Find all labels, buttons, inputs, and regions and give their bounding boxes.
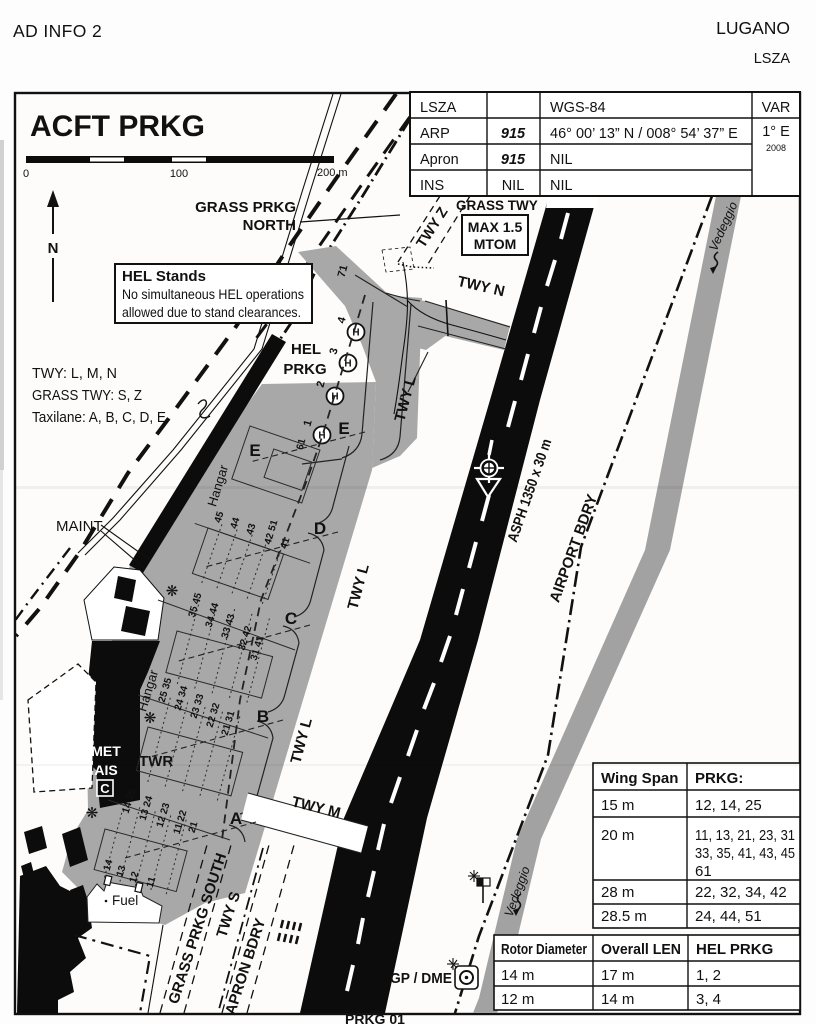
- svg-text:1° E: 1° E: [762, 124, 790, 140]
- svg-text:61: 61: [695, 863, 712, 880]
- svg-text:INS: INS: [420, 178, 444, 194]
- svg-text:Taxilane: A, B, C, D, E: Taxilane: A, B, C, D, E: [32, 409, 166, 426]
- svg-text:Rotor Diameter: Rotor Diameter: [501, 942, 587, 958]
- svg-text:0: 0: [23, 168, 29, 180]
- svg-text:11, 13, 21, 23, 31: 11, 13, 21, 23, 31: [695, 828, 795, 844]
- svg-text:MET: MET: [91, 743, 121, 759]
- svg-text:LSZA: LSZA: [420, 100, 457, 116]
- svg-text:HEL PRKG: HEL PRKG: [696, 941, 773, 958]
- svg-text:20 m: 20 m: [601, 827, 634, 844]
- svg-text:E: E: [249, 441, 260, 460]
- svg-text:12, 14, 25: 12, 14, 25: [695, 797, 762, 814]
- svg-text:14 m: 14 m: [501, 967, 534, 984]
- svg-text:GRASS TWY: S, Z: GRASS TWY: S, Z: [32, 387, 142, 404]
- svg-text:GRASS TWY: GRASS TWY: [456, 198, 538, 213]
- svg-text:2008: 2008: [766, 143, 786, 153]
- svg-text:No simultaneous HEL operations: No simultaneous HEL operations: [122, 286, 304, 302]
- svg-text:46° 00’ 13” N / 008° 54’ 37” E: 46° 00’ 13” N / 008° 54’ 37” E: [550, 126, 738, 142]
- svg-text:17 m: 17 m: [601, 967, 634, 984]
- svg-text:PRKG:: PRKG:: [695, 770, 743, 787]
- svg-text:ACFT PRKG: ACFT PRKG: [30, 110, 205, 143]
- svg-text:VAR: VAR: [762, 100, 791, 116]
- svg-text:14 m: 14 m: [601, 991, 634, 1008]
- svg-text:HEL: HEL: [291, 341, 321, 358]
- svg-text:TWY: L, M, N: TWY: L, M, N: [32, 365, 117, 382]
- svg-text:NORTH: NORTH: [243, 217, 296, 234]
- svg-text:E: E: [338, 419, 349, 438]
- svg-text:100: 100: [170, 168, 188, 180]
- svg-text:N: N: [48, 240, 59, 257]
- svg-text:28 m: 28 m: [601, 884, 634, 901]
- svg-text:C: C: [100, 781, 110, 796]
- svg-text:WGS-84: WGS-84: [550, 100, 606, 116]
- svg-text:GP / DME: GP / DME: [390, 970, 452, 987]
- svg-text:915: 915: [501, 126, 526, 142]
- svg-text:1, 2: 1, 2: [696, 967, 721, 984]
- svg-text:200 m: 200 m: [317, 167, 348, 179]
- svg-text:C: C: [285, 609, 297, 628]
- svg-text:915: 915: [501, 152, 526, 168]
- svg-text:12 m: 12 m: [501, 991, 534, 1008]
- svg-text:MAINT: MAINT: [56, 518, 103, 535]
- svg-text:allowed due to stand clearance: allowed due to stand clearances.: [122, 304, 301, 320]
- svg-text:33, 35, 41, 43, 45: 33, 35, 41, 43, 45: [695, 846, 795, 862]
- svg-text:24, 44, 51: 24, 44, 51: [695, 908, 762, 925]
- svg-text:MTOM: MTOM: [474, 236, 517, 252]
- svg-text:AD INFO 2: AD INFO 2: [13, 21, 102, 41]
- svg-text:ARP: ARP: [420, 126, 450, 142]
- svg-text:Overall LEN: Overall LEN: [601, 942, 681, 958]
- svg-text:NIL: NIL: [550, 178, 573, 194]
- svg-text:3, 4: 3, 4: [696, 991, 721, 1008]
- svg-text:NIL: NIL: [502, 178, 525, 194]
- svg-text:❋: ❋: [166, 583, 179, 600]
- svg-text:LUGANO: LUGANO: [716, 18, 790, 38]
- svg-text:❋: ❋: [86, 805, 99, 822]
- svg-text:HEL Stands: HEL Stands: [122, 268, 206, 285]
- svg-text:PRKG: PRKG: [283, 361, 326, 378]
- svg-text:H: H: [318, 431, 325, 442]
- svg-text:GRASS PRKG: GRASS PRKG: [195, 199, 296, 216]
- svg-text:Apron: Apron: [420, 152, 459, 168]
- svg-text:PRKG 01: PRKG 01: [345, 1011, 405, 1024]
- svg-text:B: B: [257, 707, 269, 726]
- svg-text:NIL: NIL: [550, 152, 573, 168]
- svg-text:Fuel: Fuel: [112, 893, 138, 908]
- svg-text:H: H: [352, 328, 359, 339]
- svg-text:22, 32, 34, 42: 22, 32, 34, 42: [695, 884, 787, 901]
- svg-text:LSZA: LSZA: [754, 51, 791, 67]
- svg-text:28.5 m: 28.5 m: [601, 908, 647, 925]
- svg-text:Wing Span: Wing Span: [601, 770, 678, 787]
- svg-text:15 m: 15 m: [601, 797, 634, 814]
- svg-text:MAX 1.5: MAX 1.5: [468, 219, 523, 235]
- svg-text:A: A: [230, 809, 242, 828]
